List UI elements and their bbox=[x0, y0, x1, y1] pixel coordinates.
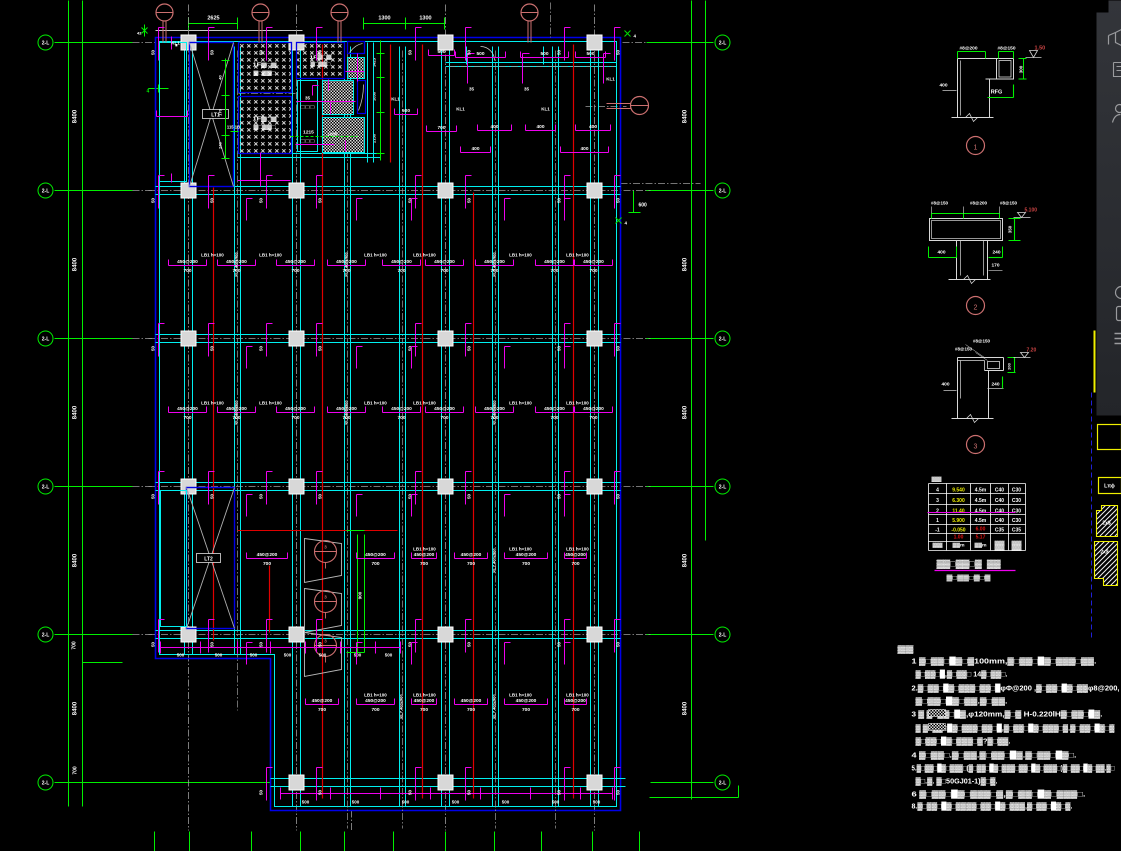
svg-text:50: 50 bbox=[408, 50, 413, 56]
svg-text:▓▓m: ▓▓m bbox=[975, 543, 987, 549]
svg-text:900: 900 bbox=[358, 591, 363, 599]
svg-text:▓▓: ▓▓ bbox=[898, 645, 915, 655]
svg-text:1300: 1300 bbox=[419, 16, 431, 22]
svg-text:8400: 8400 bbox=[683, 109, 689, 123]
svg-text:600: 600 bbox=[639, 203, 648, 209]
svg-text:450@200: 450@200 bbox=[565, 552, 586, 558]
svg-text:450@200: 450@200 bbox=[461, 698, 482, 704]
svg-text:50: 50 bbox=[557, 198, 562, 204]
svg-text:450@200: 450@200 bbox=[391, 259, 412, 265]
svg-text:3: 3 bbox=[324, 545, 327, 550]
svg-text:450@200: 450@200 bbox=[365, 552, 386, 558]
svg-text:50: 50 bbox=[259, 790, 264, 796]
svg-text:1: 1 bbox=[974, 145, 978, 152]
svg-text:500: 500 bbox=[302, 800, 310, 805]
svg-text:LB1 h=100: LB1 h=100 bbox=[259, 253, 282, 258]
svg-text:50: 50 bbox=[616, 642, 621, 648]
svg-text:1300: 1300 bbox=[378, 16, 390, 22]
svg-text:▓▓m: ▓▓m bbox=[953, 543, 965, 549]
svg-text:KL1: KL1 bbox=[606, 77, 615, 82]
svg-text:450@200: 450@200 bbox=[391, 406, 412, 412]
svg-text:700: 700 bbox=[72, 641, 78, 650]
svg-text:5.▓□▓▓□█▓□▓▓▓□(▓□▓▓□█▓□▓▓▓□▓▓□: 5.▓□▓▓□█▓□▓▓▓□(▓□▓▓□█▓□▓▓▓□▓▓□█▓□▓▓▓□)▓□… bbox=[912, 764, 1115, 774]
svg-text:2-L: 2-L bbox=[42, 781, 50, 787]
svg-text:2-L: 2-L bbox=[42, 337, 50, 343]
svg-text:700: 700 bbox=[318, 707, 326, 713]
svg-text:□□□: □□□ bbox=[301, 105, 315, 110]
svg-text:50: 50 bbox=[557, 642, 562, 648]
svg-text:▓▓□▓▓□▓ ▓▓: ▓▓□▓▓□▓ ▓▓ bbox=[937, 559, 1002, 570]
svg-text:400: 400 bbox=[937, 250, 945, 256]
svg-text:LB1 h=100: LB1 h=100 bbox=[509, 253, 532, 258]
svg-text:2-L: 2-L bbox=[719, 337, 727, 343]
svg-text:KL7 400x900: KL7 400x900 bbox=[399, 694, 404, 719]
svg-text:700: 700 bbox=[589, 268, 597, 274]
svg-text:450@200: 450@200 bbox=[565, 698, 586, 704]
svg-text:8400: 8400 bbox=[73, 405, 79, 419]
svg-text:LB1 h=100: LB1 h=100 bbox=[566, 547, 589, 552]
svg-text:6.00: 6.00 bbox=[976, 527, 986, 533]
svg-text:#8@200: #8@200 bbox=[959, 46, 977, 52]
svg-text:LB1 h=100: LB1 h=100 bbox=[413, 693, 436, 698]
svg-text:450@200: 450@200 bbox=[414, 698, 435, 704]
svg-text:C40: C40 bbox=[995, 498, 1004, 504]
svg-text:LB1 h=100: LB1 h=100 bbox=[201, 401, 224, 406]
svg-text:500: 500 bbox=[385, 653, 393, 658]
svg-text:500: 500 bbox=[452, 800, 460, 805]
svg-text:4.5m: 4.5m bbox=[975, 498, 987, 504]
svg-text:400: 400 bbox=[536, 124, 544, 130]
svg-text:700: 700 bbox=[291, 268, 299, 274]
svg-text:3: 3 bbox=[324, 639, 327, 644]
svg-text:50: 50 bbox=[151, 494, 156, 500]
svg-text:C40: C40 bbox=[995, 509, 1004, 515]
svg-text:50: 50 bbox=[210, 494, 215, 500]
svg-text:35: 35 bbox=[469, 87, 475, 92]
svg-text:450@200: 450@200 bbox=[177, 259, 198, 265]
svg-text:50: 50 bbox=[467, 346, 472, 352]
svg-text:500: 500 bbox=[284, 653, 292, 658]
svg-text:8400: 8400 bbox=[73, 109, 79, 123]
svg-text:C40: C40 bbox=[995, 518, 1004, 524]
svg-text:700: 700 bbox=[571, 707, 579, 713]
svg-text:2.▓□▓▓□█▓□▓▓▓□▓▓□█φΦ@200 ,▓□▓▓: 2.▓□▓▓□█▓□▓▓▓□▓▓□█φΦ@200 ,▓□▓▓□█▓□▓▓φ8@2… bbox=[912, 684, 1120, 694]
svg-text:2: 2 bbox=[974, 305, 978, 312]
svg-text:50: 50 bbox=[151, 198, 156, 204]
svg-text:240: 240 bbox=[992, 250, 1000, 256]
svg-text:50: 50 bbox=[318, 642, 323, 648]
svg-text:3: 3 bbox=[324, 595, 327, 600]
svg-text:50: 50 bbox=[467, 642, 472, 648]
svg-text:2-L: 2-L bbox=[719, 41, 727, 47]
svg-text:50: 50 bbox=[151, 346, 156, 352]
svg-text:LB1 h=100: LB1 h=100 bbox=[364, 253, 387, 258]
svg-text:LB1 h=100: LB1 h=100 bbox=[413, 401, 436, 406]
svg-text:2-L: 2-L bbox=[42, 41, 50, 47]
svg-text:350: 350 bbox=[1008, 225, 1013, 233]
svg-text:8400: 8400 bbox=[683, 553, 689, 567]
svg-text:500: 500 bbox=[402, 800, 410, 805]
svg-text:LB1 h=100: LB1 h=100 bbox=[566, 693, 589, 698]
svg-text:3: 3 bbox=[936, 498, 939, 504]
svg-text:700: 700 bbox=[467, 561, 475, 567]
svg-text:5.17: 5.17 bbox=[976, 535, 986, 541]
svg-text:50: 50 bbox=[259, 642, 264, 648]
svg-text:KL7 400x900: KL7 400x900 bbox=[492, 400, 497, 425]
svg-text:4 ▓□▓▓□.▓□▓▓.▓□▓▓□█▓.▓□▓▓□█▓□.: 4 ▓□▓▓□.▓□▓▓.▓□▓▓□█▓.▓□▓▓□█▓□. bbox=[912, 751, 1077, 761]
svg-text:▓□▓▓□: ▓□▓▓□ bbox=[254, 124, 276, 131]
svg-text:1F▓□▓: 1F▓□▓ bbox=[253, 62, 278, 69]
svg-text:-1: -1 bbox=[935, 528, 940, 534]
svg-text:▓▓: ▓▓ bbox=[933, 543, 944, 549]
svg-text:▓□.▓. ▓□50GJ01-1)▓□▓.: ▓□.▓. ▓□50GJ01-1)▓□▓. bbox=[916, 777, 998, 787]
svg-text:KL7 400x900: KL7 400x900 bbox=[234, 252, 239, 277]
svg-text:KL7 400x900: KL7 400x900 bbox=[492, 548, 497, 573]
svg-text:50: 50 bbox=[151, 50, 156, 56]
svg-text:2x$: 2x$ bbox=[1102, 521, 1111, 527]
svg-text:50: 50 bbox=[259, 494, 264, 500]
svg-text:50: 50 bbox=[259, 198, 264, 204]
svg-text:6 ▓□▓▓□█▓□▓▓▓□▓,▓□▓▓□█▓□▓▓▓□.: 6 ▓□▓▓□█▓□▓▓▓□▓,▓□▓▓□█▓□▓▓▓□. bbox=[912, 790, 1086, 800]
svg-text:1: 1 bbox=[936, 518, 939, 524]
svg-text:C35: C35 bbox=[995, 528, 1004, 534]
svg-text:C30: C30 bbox=[1012, 518, 1021, 524]
svg-text:C40: C40 bbox=[995, 488, 1004, 494]
svg-text:450@200: 450@200 bbox=[461, 552, 482, 558]
svg-text:450@200: 450@200 bbox=[434, 259, 455, 265]
svg-text:700: 700 bbox=[437, 125, 445, 131]
svg-text:500: 500 bbox=[250, 653, 258, 658]
svg-text:450@200: 450@200 bbox=[285, 406, 306, 412]
svg-text:450@200: 450@200 bbox=[285, 259, 306, 265]
svg-text:2-L: 2-L bbox=[42, 485, 50, 491]
svg-text:-0.050: -0.050 bbox=[951, 528, 965, 534]
svg-text:35: 35 bbox=[524, 87, 530, 92]
svg-text:KL7 400x900: KL7 400x900 bbox=[344, 400, 349, 425]
svg-text:RFG: RFG bbox=[991, 90, 1003, 96]
svg-text:500: 500 bbox=[215, 653, 223, 658]
svg-text:50: 50 bbox=[467, 790, 472, 796]
svg-text:700: 700 bbox=[397, 268, 405, 274]
svg-text:700: 700 bbox=[183, 268, 191, 274]
svg-text:500: 500 bbox=[402, 108, 410, 114]
svg-text:KL7 400x900: KL7 400x900 bbox=[492, 694, 497, 719]
svg-text:2625: 2625 bbox=[207, 16, 219, 22]
svg-text:□□□: □□□ bbox=[301, 139, 315, 144]
svg-text:700: 700 bbox=[589, 415, 597, 421]
svg-text:700: 700 bbox=[263, 561, 271, 567]
svg-text:700: 700 bbox=[467, 707, 475, 713]
svg-text:500: 500 bbox=[437, 49, 445, 55]
svg-text:170: 170 bbox=[218, 108, 223, 115]
svg-text:450@200: 450@200 bbox=[583, 406, 604, 412]
svg-text:40: 40 bbox=[218, 75, 223, 80]
svg-text:8.▓□▓▓□█▓□▓▓▓▓□▓▓□█▓□▓▓▓,▓□▓▓□: 8.▓□▓▓□█▓□▓▓▓▓□▓▓□█▓□▓▓▓,▓□▓▓□█▓□▓. bbox=[912, 802, 1073, 812]
svg-text:▓□▓▓□█▓□▓▓▓□▓?▓□▓▓.: ▓□▓▓□█▓□▓▓▓□▓?▓□▓▓. bbox=[916, 737, 1011, 747]
svg-text:170: 170 bbox=[991, 263, 999, 269]
svg-text:#8@150: #8@150 bbox=[931, 201, 948, 206]
svg-text:LB1 h=100: LB1 h=100 bbox=[509, 401, 532, 406]
svg-text:LB1 h=100: LB1 h=100 bbox=[509, 693, 532, 698]
svg-text:4: 4 bbox=[625, 221, 628, 226]
svg-text:2-L: 2-L bbox=[719, 633, 727, 639]
svg-text:4: 4 bbox=[634, 34, 637, 39]
svg-text:450@200: 450@200 bbox=[544, 406, 565, 412]
svg-text:#8@150: #8@150 bbox=[1000, 201, 1017, 206]
svg-text:KL7 400x900: KL7 400x900 bbox=[492, 252, 497, 277]
svg-text:50: 50 bbox=[616, 346, 621, 352]
svg-text:5.900: 5.900 bbox=[952, 518, 965, 524]
svg-text:8400: 8400 bbox=[73, 701, 79, 715]
svg-text:450@200: 450@200 bbox=[434, 406, 455, 412]
svg-text:▓□▓▓□▓□▓: ▓□▓▓□▓□▓ bbox=[947, 575, 992, 582]
svg-text:500: 500 bbox=[593, 800, 601, 805]
svg-text:500: 500 bbox=[319, 653, 327, 658]
svg-text:9.540: 9.540 bbox=[952, 488, 965, 494]
svg-text:300: 300 bbox=[1019, 65, 1024, 73]
svg-text:500: 500 bbox=[177, 653, 185, 658]
svg-text:LB1 h=100: LB1 h=100 bbox=[509, 547, 532, 552]
svg-text:50: 50 bbox=[557, 346, 562, 352]
svg-text:240: 240 bbox=[218, 141, 223, 148]
svg-text:▓□▓▓□█,▓□▓▓□ 14▓□▓▓□.: ▓□▓▓□█,▓□▓▓□ 14▓□▓▓□. bbox=[916, 670, 1008, 680]
svg-text:8400: 8400 bbox=[73, 257, 79, 271]
svg-text:4.5m: 4.5m bbox=[975, 518, 987, 524]
svg-text:400: 400 bbox=[939, 83, 947, 89]
svg-text:KL1: KL1 bbox=[541, 107, 550, 112]
svg-text:KL1: KL1 bbox=[456, 107, 465, 112]
svg-text:450@200: 450@200 bbox=[516, 552, 537, 558]
svg-text:50: 50 bbox=[151, 642, 156, 648]
svg-text:LB1 h=100: LB1 h=100 bbox=[364, 401, 387, 406]
svg-text:700: 700 bbox=[73, 766, 79, 775]
svg-text:2-L: 2-L bbox=[719, 781, 727, 787]
svg-text:50: 50 bbox=[210, 642, 215, 648]
svg-text:4: 4 bbox=[936, 488, 939, 494]
svg-text:#8@200: #8@200 bbox=[970, 201, 987, 206]
svg-text:4.5m: 4.5m bbox=[975, 509, 987, 515]
svg-text:2: 2 bbox=[936, 509, 939, 515]
svg-text:4.5m: 4.5m bbox=[975, 488, 987, 494]
svg-text:50: 50 bbox=[210, 198, 215, 204]
svg-text:50: 50 bbox=[467, 50, 472, 56]
svg-text:700: 700 bbox=[571, 561, 579, 567]
svg-text:KL1: KL1 bbox=[171, 41, 180, 46]
svg-text:50: 50 bbox=[557, 50, 562, 56]
svg-text:50: 50 bbox=[259, 50, 264, 56]
svg-text:1.00: 1.00 bbox=[954, 535, 964, 541]
svg-text:42: 42 bbox=[137, 31, 142, 36]
svg-text:50: 50 bbox=[259, 346, 264, 352]
svg-text:700: 700 bbox=[440, 268, 448, 274]
svg-text:Lπɸ: Lπɸ bbox=[1104, 484, 1115, 490]
svg-text:50: 50 bbox=[616, 50, 621, 56]
svg-text:500: 500 bbox=[552, 800, 560, 805]
svg-text:▓□▓▓□█▓□▓▓.▓□▓▓.: ▓□▓▓□█▓□▓▓.▓□▓▓. bbox=[916, 697, 1008, 707]
svg-text:115 1B: 115 1B bbox=[227, 125, 240, 130]
svg-text:11.40: 11.40 bbox=[952, 509, 964, 515]
svg-text:400: 400 bbox=[490, 124, 498, 130]
svg-text:8400: 8400 bbox=[683, 257, 689, 271]
svg-text:500: 500 bbox=[354, 653, 362, 658]
svg-text:400: 400 bbox=[589, 124, 597, 130]
svg-text:LB1 h=100: LB1 h=100 bbox=[413, 547, 436, 552]
svg-text:LT2: LT2 bbox=[204, 557, 213, 563]
svg-text:KL7 400x900: KL7 400x900 bbox=[234, 400, 239, 425]
svg-text:50: 50 bbox=[616, 494, 621, 500]
svg-text:KL7 400x900: KL7 400x900 bbox=[344, 252, 349, 277]
svg-text:450@200: 450@200 bbox=[365, 698, 386, 704]
svg-text:LB1 h=100: LB1 h=100 bbox=[201, 253, 224, 258]
svg-text:6.300: 6.300 bbox=[952, 498, 965, 504]
svg-text:700: 700 bbox=[291, 415, 299, 421]
svg-text:450@200: 450@200 bbox=[544, 259, 565, 265]
svg-text:5.100: 5.100 bbox=[1025, 208, 1038, 214]
svg-text:#8@150: #8@150 bbox=[997, 46, 1015, 52]
svg-text:700: 700 bbox=[550, 415, 558, 421]
svg-text:50: 50 bbox=[467, 198, 472, 204]
svg-text:700: 700 bbox=[440, 415, 448, 421]
svg-text:700: 700 bbox=[371, 707, 379, 713]
svg-text:50: 50 bbox=[210, 50, 215, 56]
svg-text:LB1 h=100: LB1 h=100 bbox=[259, 401, 282, 406]
svg-text:450@200: 450@200 bbox=[516, 698, 537, 704]
svg-text:700: 700 bbox=[420, 707, 428, 713]
svg-text:450@200: 450@200 bbox=[583, 259, 604, 265]
svg-text:LB1 h=100: LB1 h=100 bbox=[566, 253, 589, 258]
svg-text:2-L: 2-L bbox=[42, 633, 50, 639]
svg-text:500: 500 bbox=[476, 51, 484, 57]
svg-text:1.50: 1.50 bbox=[1035, 46, 1046, 52]
svg-text:700: 700 bbox=[550, 268, 558, 274]
svg-text:450@200: 450@200 bbox=[177, 406, 198, 412]
svg-text:C30: C30 bbox=[1012, 488, 1021, 494]
svg-text:1F▓□▓: 1F▓□▓ bbox=[253, 116, 278, 123]
svg-text:2x$: 2x$ bbox=[1100, 550, 1109, 556]
svg-text:50: 50 bbox=[318, 346, 323, 352]
svg-text:7.20: 7.20 bbox=[1027, 348, 1037, 354]
svg-text:50: 50 bbox=[557, 790, 562, 796]
svg-text:50: 50 bbox=[210, 346, 215, 352]
svg-text:▓□▓▓□: ▓□▓▓□ bbox=[254, 70, 276, 77]
svg-text:1215: 1215 bbox=[303, 130, 314, 136]
svg-text:400: 400 bbox=[580, 146, 588, 152]
svg-text:C35: C35 bbox=[1012, 528, 1021, 534]
svg-text:C30: C30 bbox=[1012, 498, 1021, 504]
svg-text:C30: C30 bbox=[1012, 509, 1021, 515]
svg-text:▓▓: ▓▓ bbox=[932, 476, 942, 483]
svg-text:3: 3 bbox=[974, 444, 978, 451]
svg-text:700: 700 bbox=[522, 561, 530, 567]
svg-text:450@200: 450@200 bbox=[257, 552, 278, 558]
svg-text:KL1: KL1 bbox=[391, 97, 400, 102]
svg-text:500: 500 bbox=[586, 51, 594, 57]
svg-text:50: 50 bbox=[616, 198, 621, 204]
svg-text:700: 700 bbox=[371, 561, 379, 567]
svg-text:LB1 h=100: LB1 h=100 bbox=[413, 253, 436, 258]
svg-text:1005: 1005 bbox=[327, 132, 338, 137]
svg-text:50: 50 bbox=[318, 198, 323, 204]
svg-text:700: 700 bbox=[522, 707, 530, 713]
svg-text:LB1 h=100: LB1 h=100 bbox=[566, 401, 589, 406]
svg-text:50: 50 bbox=[408, 790, 413, 796]
svg-text:4: 4 bbox=[147, 89, 150, 95]
svg-text:500: 500 bbox=[352, 800, 360, 805]
svg-text:8400: 8400 bbox=[683, 405, 689, 419]
svg-text:50: 50 bbox=[318, 494, 323, 500]
svg-text:LB1 h=100: LB1 h=100 bbox=[364, 693, 387, 698]
svg-text:700: 700 bbox=[183, 415, 191, 421]
svg-text:50: 50 bbox=[616, 790, 621, 796]
svg-text:500: 500 bbox=[502, 800, 510, 805]
svg-text:1 ▓□▓▓□█▓□▓100mm,▓□▓▓□█▓□▓▓▓□▓: 1 ▓□▓▓□█▓□▓100mm,▓□▓▓□█▓□▓▓▓□▓▓. bbox=[912, 657, 1097, 667]
svg-text:200: 200 bbox=[1007, 362, 1012, 369]
svg-text:2-L: 2-L bbox=[719, 189, 727, 195]
svg-text:700: 700 bbox=[420, 561, 428, 567]
svg-text:700: 700 bbox=[397, 415, 405, 421]
svg-text:2-L: 2-L bbox=[719, 485, 727, 491]
svg-text:8400: 8400 bbox=[73, 553, 79, 567]
svg-text:50: 50 bbox=[557, 494, 562, 500]
svg-text:2-L: 2-L bbox=[42, 189, 50, 195]
svg-text:50: 50 bbox=[467, 494, 472, 500]
svg-text:50: 50 bbox=[318, 50, 323, 56]
svg-text:50: 50 bbox=[318, 790, 323, 796]
svg-text:450@200: 450@200 bbox=[414, 552, 435, 558]
svg-text:450@200: 450@200 bbox=[312, 698, 333, 704]
svg-text:240: 240 bbox=[991, 382, 999, 388]
svg-text:500: 500 bbox=[540, 51, 548, 57]
svg-text:35: 35 bbox=[305, 96, 311, 101]
svg-text:8400: 8400 bbox=[683, 701, 689, 715]
svg-text:400: 400 bbox=[941, 382, 949, 388]
svg-text:400: 400 bbox=[471, 146, 479, 152]
svg-text:#8@150: #8@150 bbox=[973, 339, 990, 344]
